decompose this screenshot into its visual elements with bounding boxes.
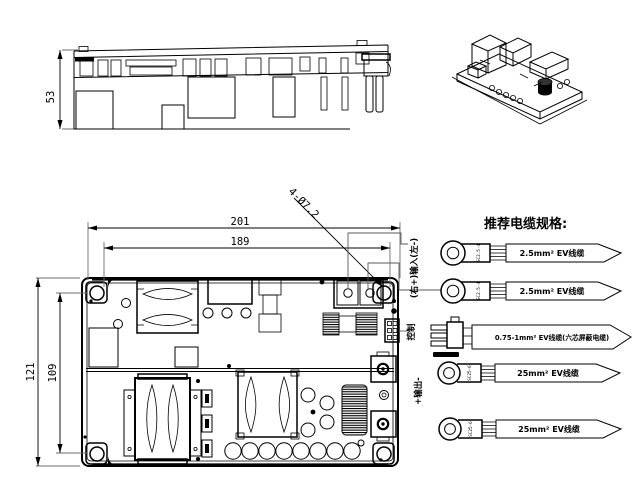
cable-spec-4: 25mm² EV线缆 (517, 368, 579, 378)
control-terminal-label: 控制 (406, 323, 417, 341)
toroid-1 (259, 278, 281, 332)
cable-5: SC25-6 25mm² EV线缆 (439, 418, 621, 440)
cable-title: 推荐电缆规格: (484, 216, 567, 232)
lug-label-5: SC25-6 (468, 421, 474, 437)
dim-201: 201 (231, 216, 250, 228)
toroid-2 (342, 385, 367, 435)
cable-1: SC2.5-4 2.5mm² EV线缆 (441, 241, 621, 265)
cable-spec-3: 0.75-1mm² EV线缆(六芯屏蔽电缆) (495, 333, 609, 342)
control-header (385, 319, 399, 342)
technical-drawing: 53 (0, 0, 632, 482)
cable-3: 0.75-1mm² EV线缆(六芯屏蔽电缆) (431, 317, 631, 357)
output-terminal-2 (371, 411, 396, 441)
transformer-3 (236, 370, 299, 439)
inductor (323, 313, 377, 335)
cable-spec-1: 2.5mm² EV线缆 (520, 248, 585, 258)
lug-label-1: SC2.5-4 (476, 244, 482, 263)
transformer-2 (124, 374, 201, 464)
cable-spec-5: 25mm² EV线缆 (518, 424, 580, 434)
drawing-sheet: 53 (0, 0, 632, 482)
cable-4: SC25-6 25mm² EV线缆 (438, 362, 620, 384)
cable-spec-2: 2.5mm² EV线缆 (520, 286, 585, 296)
dim-121: 121 (25, 363, 37, 382)
isometric-view (452, 35, 587, 124)
lug-label-4: SC25-6 (467, 365, 473, 381)
cable-2: SC2.5-4 2.5mm² EV线缆 (441, 279, 621, 303)
dim-109: 109 (47, 364, 59, 383)
output-terminal-1 (371, 352, 396, 382)
output-terminal-label: +输出- (413, 377, 424, 405)
side-view: 53 (45, 41, 390, 130)
side-height-dim: 53 (45, 91, 57, 104)
holes-note: 4-Ø7.2 (286, 186, 321, 221)
transformer-1 (137, 281, 198, 333)
input-terminal-label: (右+)输入(左-) (409, 238, 420, 298)
capacitor-row (225, 440, 364, 459)
top-view (82, 278, 399, 467)
lug-label-2: SC2.5-4 (476, 282, 482, 301)
dim-189: 189 (231, 236, 250, 248)
